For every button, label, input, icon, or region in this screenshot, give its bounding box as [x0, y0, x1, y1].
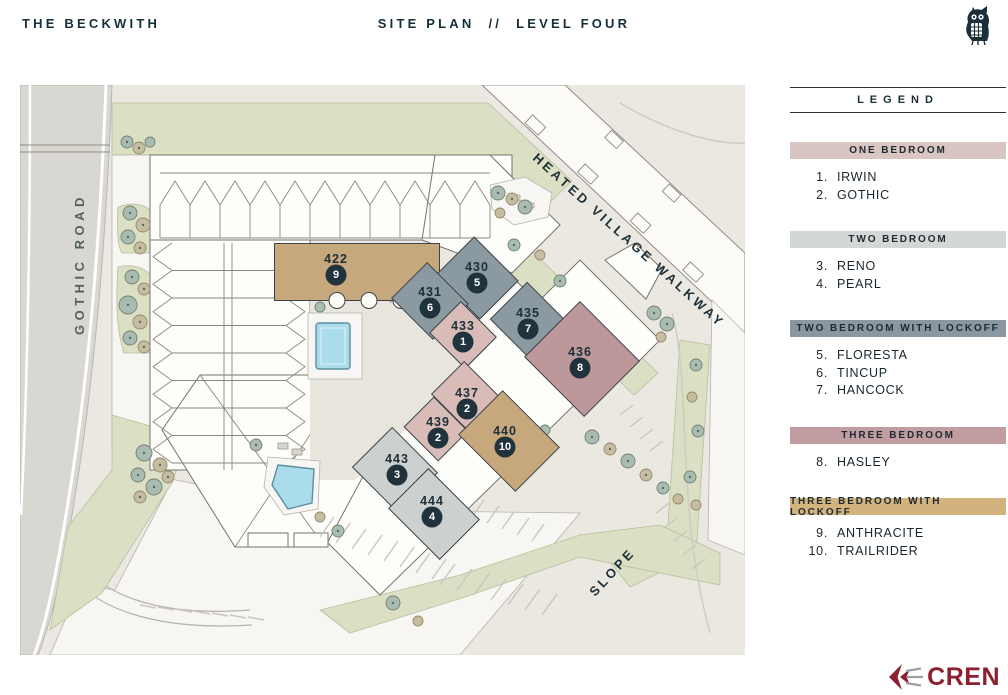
unit-legend-number: 5	[474, 277, 480, 289]
legend-item: 10. TRAILRIDER	[804, 543, 1006, 561]
tree-center	[695, 364, 697, 366]
page-title: SITE PLAN//LEVEL FOUR	[0, 16, 1008, 31]
legend-item-name: TRAILRIDER	[837, 543, 918, 561]
owl-logo-icon	[960, 4, 996, 46]
legend-section: THREE BEDROOM WITH LOCKOFF 9. ANTHRACITE…	[790, 498, 1006, 560]
unit-number-label: 430	[465, 260, 489, 274]
legend-item-number: 6.	[804, 365, 828, 383]
legend-section: TWO BEDROOM WITH LOCKOFF 5. FLORESTA 6. …	[790, 320, 1006, 400]
tree-center	[627, 460, 629, 462]
tree-icon	[535, 250, 545, 260]
tree-icon	[656, 332, 666, 342]
cren-logo-icon	[884, 662, 924, 692]
legend-section: THREE BEDROOM 8. HASLEY	[790, 427, 1006, 472]
tree-icon	[691, 500, 701, 510]
unit-scallop	[329, 293, 345, 309]
legend-section: TWO BEDROOM 3. RENO 4. PEARL	[790, 231, 1006, 293]
tree-center	[524, 206, 526, 208]
legend-item-name: GOTHIC	[837, 187, 890, 205]
unit-legend-number: 3	[394, 469, 400, 481]
tree-icon	[495, 208, 505, 218]
legend-category-header: ONE BEDROOM	[790, 142, 1006, 159]
tree-center	[662, 487, 664, 489]
tree-center	[559, 280, 561, 282]
tree-icon	[413, 616, 423, 626]
legend-item-name: ANTHRACITE	[837, 525, 924, 543]
unit-number-label: 444	[420, 494, 444, 508]
legend-item-name: IRWIN	[837, 169, 877, 187]
tree-center	[645, 474, 647, 476]
unit-legend-number: 8	[577, 362, 583, 374]
legend-item: 8. HASLEY	[804, 454, 1006, 472]
legend-category-header: TWO BEDROOM	[790, 231, 1006, 248]
title-separator: //	[488, 16, 502, 31]
legend-item: 9. ANTHRACITE	[804, 525, 1006, 543]
tree-center	[127, 304, 129, 306]
legend-category-header: TWO BEDROOM WITH LOCKOFF	[790, 320, 1006, 337]
unit-legend-number: 2	[464, 403, 470, 415]
legend-item-number: 2.	[804, 187, 828, 205]
legend-item: 7. HANCOCK	[804, 382, 1006, 400]
legend-item-number: 7.	[804, 382, 828, 400]
cren-logo-text: CREN	[927, 663, 1000, 692]
tree-center	[513, 244, 515, 246]
legend-item-name: HANCOCK	[837, 382, 904, 400]
legend-item-number: 9.	[804, 525, 828, 543]
tree-center	[697, 430, 699, 432]
tree-center	[131, 276, 133, 278]
tree-center	[689, 476, 691, 478]
tree-center	[142, 224, 144, 226]
cren-logo: CREN	[884, 662, 1000, 692]
unit-legend-number: 2	[435, 432, 441, 444]
tree-center	[392, 602, 394, 604]
legend-item-name: RENO	[837, 258, 876, 276]
tree-center	[666, 323, 668, 325]
page-title-sub: LEVEL FOUR	[516, 16, 630, 31]
site-plan-map: 4229430543164357433143684372439244010443…	[20, 85, 745, 655]
tree-center	[159, 464, 161, 466]
unit-legend-number: 6	[427, 302, 433, 314]
unit-number-label: 439	[426, 415, 450, 429]
tree-icon	[673, 494, 683, 504]
legend-item-number: 4.	[804, 276, 828, 294]
legend-item-number: 8.	[804, 454, 828, 472]
legend-panel: LEGEND ONE BEDROOM 1. IRWIN 2. GOTHIC TW…	[790, 85, 1006, 587]
legend-item: 4. PEARL	[804, 276, 1006, 294]
tree-center	[143, 346, 145, 348]
unit-legend-number: 7	[525, 323, 531, 335]
tree-center	[511, 198, 513, 200]
unit-number-label: 440	[493, 424, 517, 438]
legend-item: 1. IRWIN	[804, 169, 1006, 187]
legend-item: 5. FLORESTA	[804, 347, 1006, 365]
legend-title: LEGEND	[790, 87, 1006, 113]
legend-item-number: 5.	[804, 347, 828, 365]
tree-center	[129, 212, 131, 214]
unit-number-label: 437	[455, 386, 479, 400]
tree-icon	[687, 392, 697, 402]
tree-center	[337, 530, 339, 532]
legend-item-number: 1.	[804, 169, 828, 187]
legend-item-number: 10.	[804, 543, 828, 561]
unit-legend-number: 10	[499, 441, 511, 453]
unit-number-label: 422	[324, 252, 348, 266]
tree-center	[127, 236, 129, 238]
unit-scallop	[361, 293, 377, 309]
unit-number-label: 431	[418, 285, 442, 299]
tree-center	[129, 337, 131, 339]
legend-item-name: TINCUP	[837, 365, 888, 383]
tree-center	[139, 496, 141, 498]
tree-center	[138, 147, 140, 149]
tree-center	[137, 474, 139, 476]
legend-item-number: 3.	[804, 258, 828, 276]
unit-number-label: 433	[451, 319, 475, 333]
tree-center	[139, 321, 141, 323]
tree-center	[609, 448, 611, 450]
legend-item: 6. TINCUP	[804, 365, 1006, 383]
tree-center	[653, 312, 655, 314]
right-path	[708, 300, 745, 555]
tree-center	[126, 141, 128, 143]
unit-legend-number: 4	[429, 511, 436, 523]
legend-section: ONE BEDROOM 1. IRWIN 2. GOTHIC	[790, 142, 1006, 204]
tree-center	[255, 444, 257, 446]
road-label: GOTHIC ROAD	[72, 193, 87, 335]
unit-legend-number: 9	[333, 269, 339, 281]
tree-center	[143, 452, 145, 454]
tree-center	[167, 476, 169, 478]
unit-number-label: 436	[568, 345, 592, 359]
tree-icon	[315, 512, 325, 522]
tree-center	[591, 436, 593, 438]
tree-center	[497, 192, 499, 194]
tree-icon	[315, 302, 325, 312]
tree-icon	[145, 137, 155, 147]
legend-category-header: THREE BEDROOM WITH LOCKOFF	[790, 498, 1006, 515]
legend-item-name: FLORESTA	[837, 347, 908, 365]
legend-category-header: THREE BEDROOM	[790, 427, 1006, 444]
unit-legend-number: 1	[460, 336, 466, 348]
legend-item: 2. GOTHIC	[804, 187, 1006, 205]
tree-center	[143, 288, 145, 290]
unit-number-label: 443	[385, 452, 409, 466]
unit-number-label: 435	[516, 306, 540, 320]
legend-item: 3. RENO	[804, 258, 1006, 276]
tree-center	[153, 486, 155, 488]
legend-item-name: PEARL	[837, 276, 882, 294]
page-title-main: SITE PLAN	[378, 16, 475, 31]
tree-center	[139, 247, 141, 249]
legend-item-name: HASLEY	[837, 454, 891, 472]
